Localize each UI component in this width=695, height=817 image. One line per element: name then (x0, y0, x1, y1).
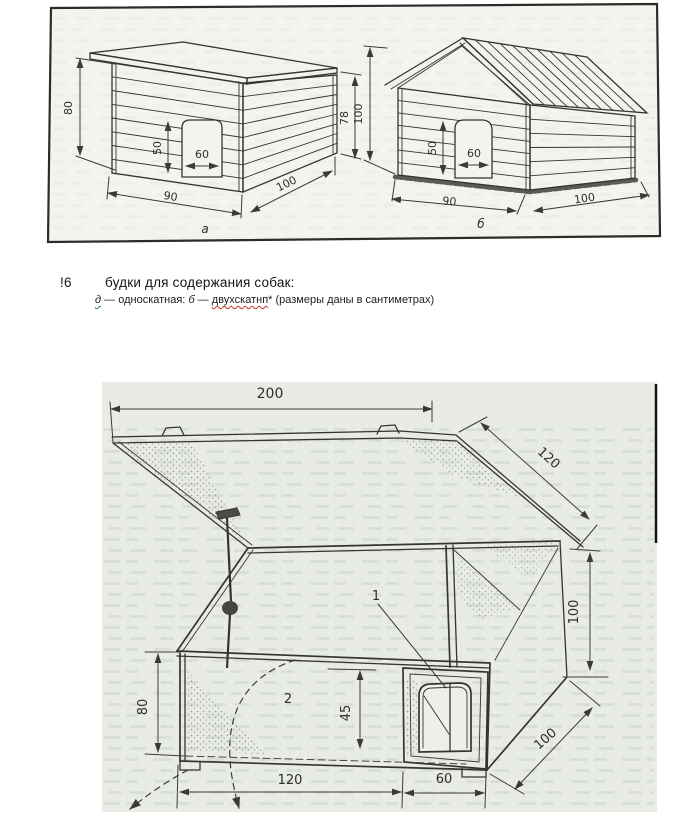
legend-tail: * (размеры даны в сантиметрах) (268, 294, 434, 306)
figure-caption: !6будки для содержания собак: (60, 275, 295, 290)
chest-kennel-drawing: 200 120 100 80 45 120 60 100 1 2 (100, 380, 695, 812)
figure-number: !6 (60, 275, 105, 290)
dim-chest-height-left: 80 (136, 699, 151, 716)
dim-chest-width-main: 120 (278, 773, 303, 788)
figure-chest-kennel-scan: 200 120 100 80 45 120 60 100 1 2 (100, 380, 695, 812)
kennels-drawing: 80 78 50 60 90 100 а (45, 2, 665, 245)
figure-legend: д — односкатная: б — двухскатнп* (размер… (95, 294, 434, 306)
dim-house-a-height-right: 78 (338, 111, 351, 125)
dim-house-b-door-width: 60 (467, 147, 481, 160)
legend-word-b: двухскатнп (212, 294, 268, 306)
entrance-hole (419, 683, 471, 752)
figure-title: будки для содержания собак: (105, 275, 295, 290)
label-house-b: б (477, 217, 485, 231)
dim-house-a-width: 90 (163, 189, 179, 204)
figure-kennels-scan: 80 78 50 60 90 100 а (45, 2, 665, 245)
label-house-a: а (201, 222, 208, 236)
callout-2: 2 (284, 692, 292, 707)
dim-house-b-width: 90 (442, 194, 457, 208)
dim-house-b-height-left: 100 (352, 104, 365, 125)
dim-house-a-height-left: 80 (62, 101, 75, 115)
dim-house-a-door-width: 60 (195, 148, 209, 161)
dim-entry-height: 45 (339, 705, 354, 722)
dim-house-b-door-height: 50 (426, 141, 439, 155)
document-page: { "caption": { "figure_number": "!6", "t… (0, 0, 695, 812)
dim-chest-height-right: 100 (567, 600, 582, 625)
dim-chest-width-entry: 60 (436, 772, 453, 787)
legend-dash: — (195, 294, 212, 306)
dim-house-a-door-height: 50 (151, 141, 164, 155)
callout-1: 1 (372, 589, 380, 604)
legend-text-a: — односкатная: (101, 294, 188, 306)
dim-chest-width-top: 200 (257, 386, 284, 402)
